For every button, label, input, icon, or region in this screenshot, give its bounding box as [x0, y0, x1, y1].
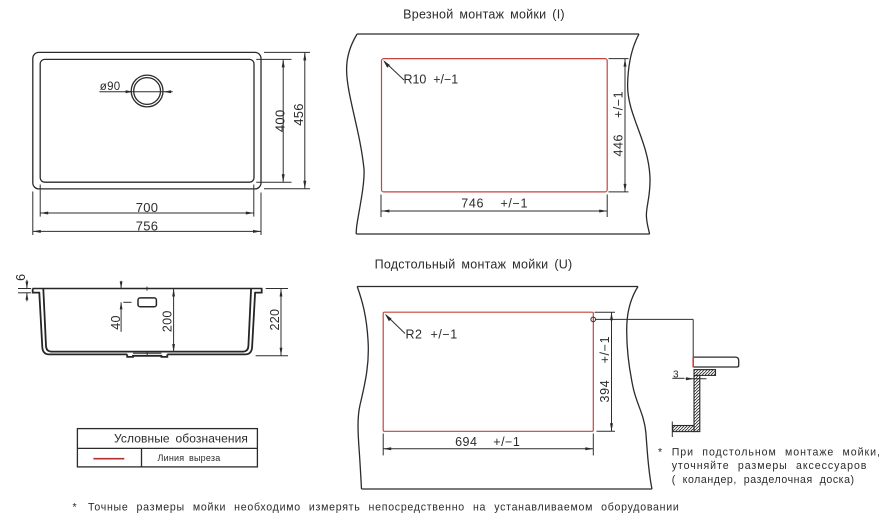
svg-text:R10 +/−1: R10 +/−1: [404, 73, 459, 87]
svg-text:R2 +/−1: R2 +/−1: [406, 327, 458, 341]
svg-text:*: *: [658, 446, 663, 458]
svg-text:694 +/−1: 694 +/−1: [455, 435, 520, 449]
svg-text:446 +/−1: 446 +/−1: [611, 91, 625, 156]
svg-text:уточняйте размеры аксессуаров: уточняйте размеры аксессуаров: [672, 460, 868, 472]
svg-text:Условные обозначения: Условные обозначения: [114, 431, 248, 445]
svg-text:40: 40: [109, 315, 123, 330]
svg-text:756: 756: [136, 218, 159, 233]
svg-text:Подстольный монтаж мойки (U): Подстольный монтаж мойки (U): [375, 258, 573, 272]
svg-text:*: *: [73, 502, 77, 514]
svg-text:456: 456: [291, 103, 306, 126]
svg-text:400: 400: [273, 110, 288, 133]
svg-text:Врезной монтаж мойки (I): Врезной монтаж мойки (I): [403, 8, 565, 22]
svg-text:700: 700: [136, 200, 159, 215]
svg-text:Точные размеры мойки необходим: Точные размеры мойки необходимо измерять…: [88, 502, 680, 514]
svg-text:220: 220: [268, 309, 282, 331]
svg-text:ø90: ø90: [100, 81, 120, 93]
svg-text:( коландер, разделочная доска): ( коландер, разделочная доска): [672, 474, 855, 486]
svg-text:3: 3: [673, 370, 679, 381]
svg-text:При подстольном монтаже мойки,: При подстольном монтаже мойки,: [672, 446, 881, 458]
svg-text:200: 200: [160, 310, 174, 332]
svg-text:Линия выреза: Линия выреза: [158, 453, 221, 463]
svg-text:746 +/−1: 746 +/−1: [461, 196, 528, 210]
svg-text:6: 6: [14, 274, 28, 281]
svg-text:394 +/−1: 394 +/−1: [598, 336, 612, 402]
